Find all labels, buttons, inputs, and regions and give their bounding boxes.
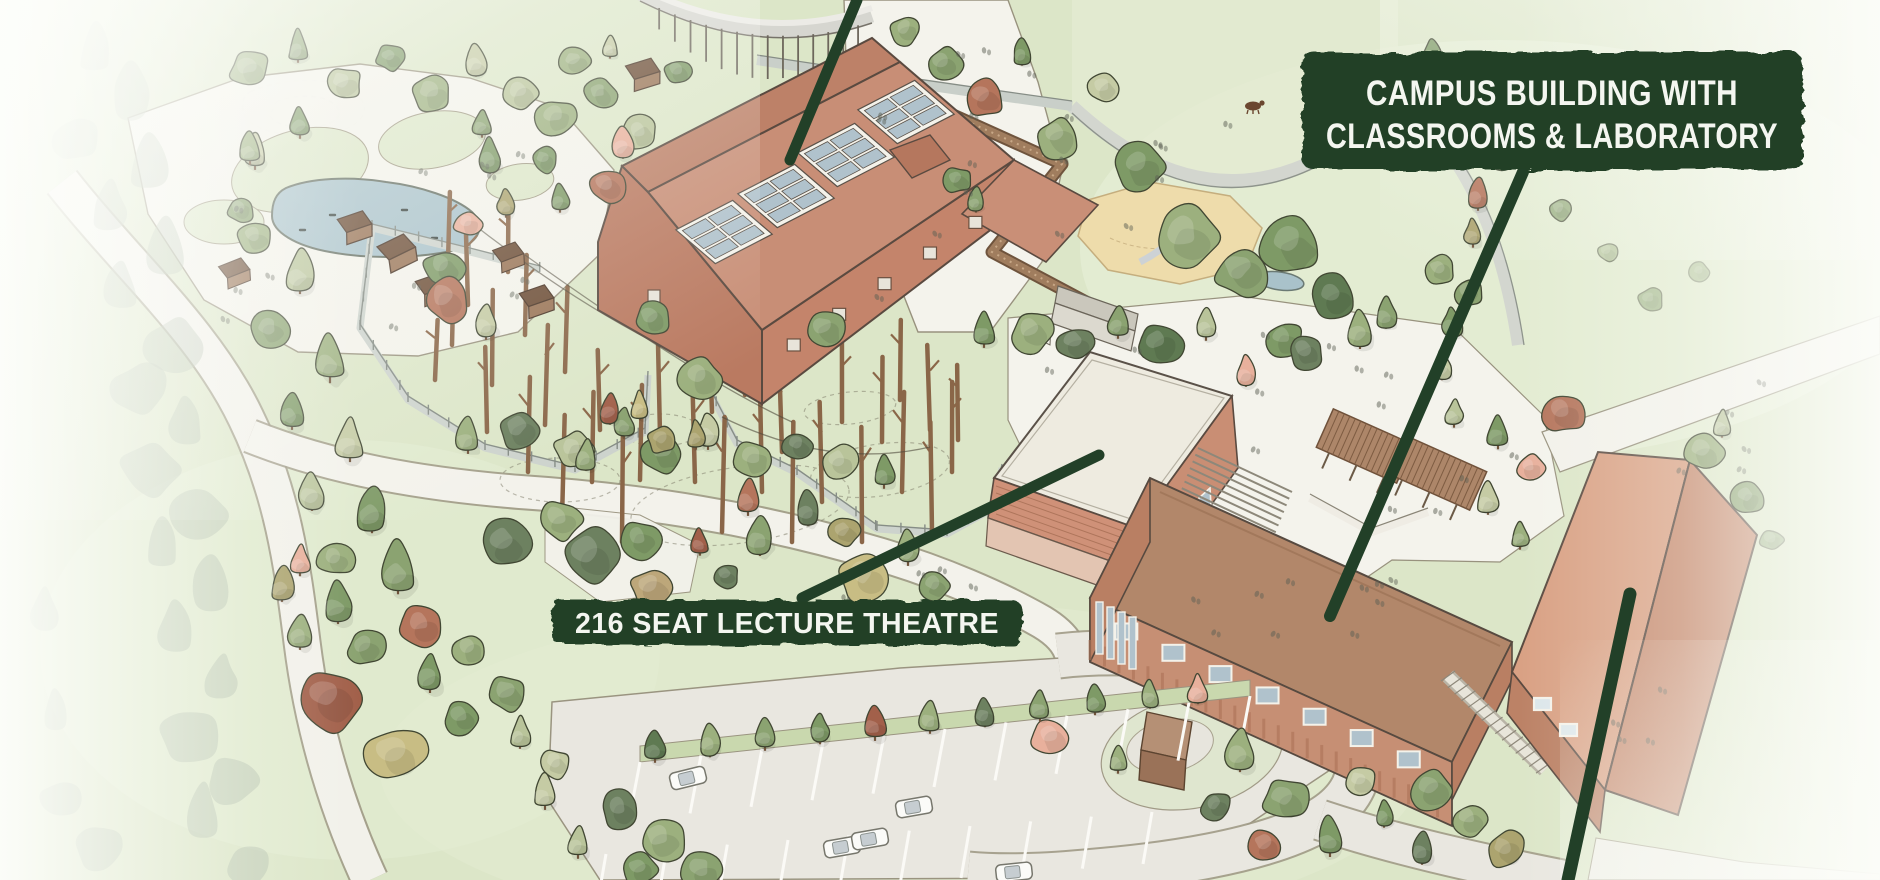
tree [603,789,636,830]
car [995,862,1033,880]
label-campus-building-line1: CAMPUS BUILDING WITH [1366,74,1738,113]
tree [808,312,845,347]
tree [643,820,685,862]
campus-map-illustration: CAMPUS BUILDING WITH CLASSROOMS & LABORA… [0,0,1880,880]
campus-map-canvas: CAMPUS BUILDING WITH CLASSROOMS & LABORA… [0,0,1880,880]
label-campus-building-line2: CLASSROOMS & LABORATORY [1326,117,1778,156]
label-lecture-theatre: 216 SEAT LECTURE THEATRE [552,600,1022,645]
tree [1346,768,1375,796]
label-lecture-theatre-text: 216 SEAT LECTURE THEATRE [575,608,999,640]
label-campus-building: CAMPUS BUILDING WITH CLASSROOMS & LABORA… [1302,52,1803,170]
tree [1291,336,1322,370]
